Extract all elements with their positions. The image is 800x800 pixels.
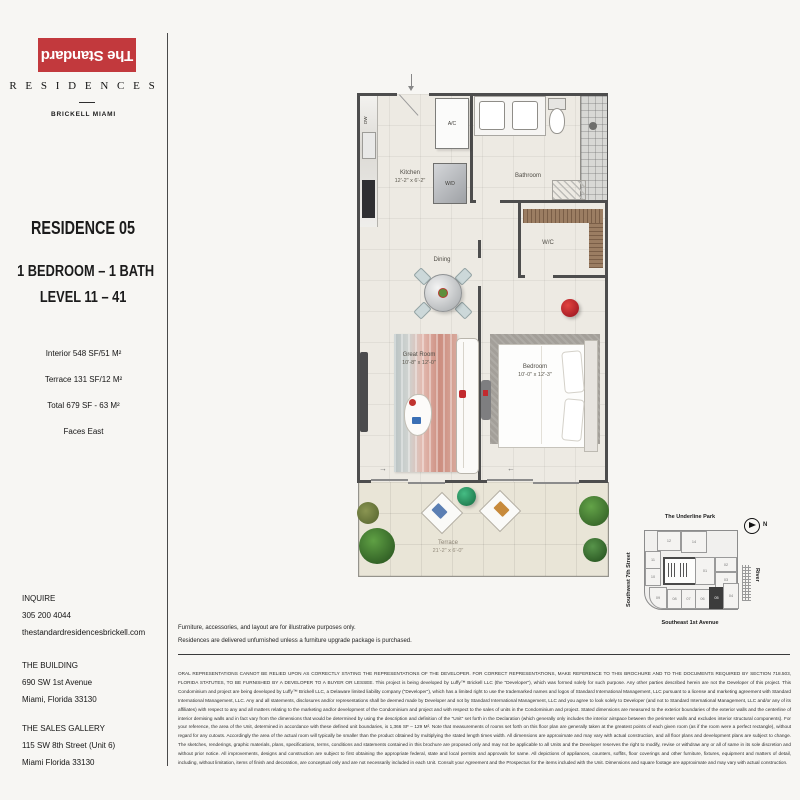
brand-logo: The Standard [38,38,136,72]
wall-wc-bottom-b [553,275,608,278]
plant [579,496,609,526]
left-column: The Standard R E S I D E N C E S BRICKEL… [0,0,167,800]
flowers-red [409,399,416,406]
inquire-label: INQUIRE [22,590,145,607]
wardrobe-right [589,223,603,268]
terrace-label: Terrace 21'-2" x 6'-0" [416,540,480,555]
building-addr2: Miami, Florida 33130 [22,691,97,708]
wall-bath-bottom-a [470,200,476,203]
keyplan-core [663,557,697,585]
slide-arrow-left-icon: ← [507,464,515,473]
residence-title: RESIDENCE 05 [0,218,167,239]
brand-location-label: BRICKELL MIAMI [0,111,167,118]
wall-terrace-a [357,480,371,483]
building-addr1: 690 SW 1st Avenue [22,674,97,691]
keyplan-unit: 04 [723,583,739,609]
keyplan-unit: 01 [695,557,715,585]
bed-headboard [584,340,598,452]
red-pouf [561,299,579,317]
tv-console [360,352,368,432]
legal-disclaimer: ORAL REPRESENTATIONS CANNOT BE RELIED UP… [178,670,791,768]
keyplan-unit: 10 [645,568,661,586]
dishwasher-label: DW [363,102,368,124]
keyplan: The Underline Park N Southwest 7th Stree… [622,508,800,630]
plant [583,538,607,562]
brochure-page: The Standard R E S I D E N C E S BRICKEL… [0,0,800,800]
bathroom-sink-right [512,101,538,130]
stat-interior: Interior 548 SF/51 M² [0,349,167,358]
keyplan-building: 12 14 11 10 01 02 03 09 08 07 06 05 04 [644,530,738,610]
wall-bedroom-divider-a [478,240,481,258]
sliding-door-pane[interactable] [487,479,533,481]
entry-arrow-head-icon [408,86,414,91]
bedroom-bench [481,380,491,420]
footer-divider [178,654,790,655]
elevator-hatch [680,563,688,577]
keyplan-unit: 14 [681,531,707,553]
bed-seam [541,346,542,444]
sliding-door-pane[interactable] [371,479,408,481]
wall-terrace-b [445,480,487,483]
kitchen-sink [362,132,376,159]
book-blue [412,417,421,424]
elevator-hatch [668,563,676,577]
toilet-bowl [549,108,565,134]
note-line-2: Residences are delivered unfurnished unl… [178,635,598,648]
great-room-label: Great Room 10'-8" x 12'-0" [387,352,451,367]
keyplan-park-label: The Underline Park [630,514,750,520]
wall-wc-left [518,203,521,275]
inquire-phone[interactable]: 305 200 4044 [22,607,145,624]
gallery-addr2: Miami Florida 33130 [22,754,115,771]
keyplan-river-label: River [754,568,760,600]
bed-pillow [561,398,585,442]
stat-faces: Faces East [0,427,167,436]
entry-arrow-icon [411,74,412,86]
river-hatch-icon [742,565,751,601]
sofa-cushion-line [463,342,464,468]
wall-bath-bottom-b [500,200,608,203]
sofa-red-pillow [459,390,466,398]
note-line-1: Furniture, accessories, and layout are f… [178,622,598,635]
ac-closet: A/C [435,98,469,149]
keyplan-unit: 06 [695,589,710,609]
keyplan-unit: 02 [715,557,737,572]
compass-needle-icon [749,522,756,528]
floorplan: → ← DW Kitchen 12'-2" x 6'-2" A/C W/D Ba… [357,72,609,579]
keyplan-avenue-label: Southeast 1st Avenue [630,620,750,626]
brand-dash [79,102,95,103]
stat-terrace: Terrace 131 SF/12 M² [0,375,167,384]
wc-label: W/C [525,240,571,248]
bedroom-label: Bedroom 10'-0" x 12'-3" [503,364,567,379]
gallery-label: THE SALES GALLERY [22,720,115,737]
terrace-area [358,482,609,577]
building-label: THE BUILDING [22,657,97,674]
stat-total: Total 679 SF - 63 M² [0,401,167,410]
gallery-addr1: 115 SW 8th Street (Unit 6) [22,737,115,754]
green-pouf [457,487,476,506]
plant [359,528,395,564]
sliding-door-pane[interactable] [533,482,579,484]
wall-bath-left [470,96,473,200]
wardrobe-top [523,209,603,223]
gallery-block: THE SALES GALLERY 115 SW 8th Street (Uni… [22,720,115,771]
washer-dryer: W/D [433,163,467,204]
residence-bed-bath: 1 BEDROOM – 1 BATH [0,263,167,281]
showerhead-icon [589,122,597,130]
shaft-hatch [552,180,586,200]
bench-red-item [483,390,488,396]
inquire-website[interactable]: thestandardresidencesbrickell.com [22,624,145,641]
keyplan-unit: 07 [681,589,696,609]
plant [357,502,379,524]
sliding-door-pane[interactable] [408,482,445,484]
furniture-notes: Furniture, accessories, and layout are f… [178,622,598,648]
kitchen-cooktop [362,180,375,218]
dining-centerpiece [438,288,448,298]
slide-arrow-right-icon: → [379,464,387,473]
brand-logo-text: The Standard [41,47,133,64]
wall-wc-bottom-a [518,275,525,278]
sofa [456,338,479,474]
vertical-divider [167,33,168,766]
keyplan-unit: 12 [657,531,681,551]
residence-level: LEVEL 11 – 41 [0,289,167,307]
compass-north-label: N [763,522,767,528]
keyplan-unit: 11 [645,551,661,569]
brand-residences-label: R E S I D E N C E S [0,80,167,92]
keyplan-unit: 08 [667,589,682,609]
bathroom-sink-left [479,101,505,130]
dining-label: Dining [409,257,475,265]
building-block: THE BUILDING 690 SW 1st Avenue Miami, Fl… [22,657,97,708]
keyplan-unit-highlighted: 05 [709,587,724,609]
keyplan-unit: 09 [649,587,667,609]
keyplan-street-label: Southwest 7th Street [626,538,632,622]
inquire-block: INQUIRE 305 200 4044 thestandardresidenc… [22,590,145,641]
wall-terrace-c [579,480,608,483]
